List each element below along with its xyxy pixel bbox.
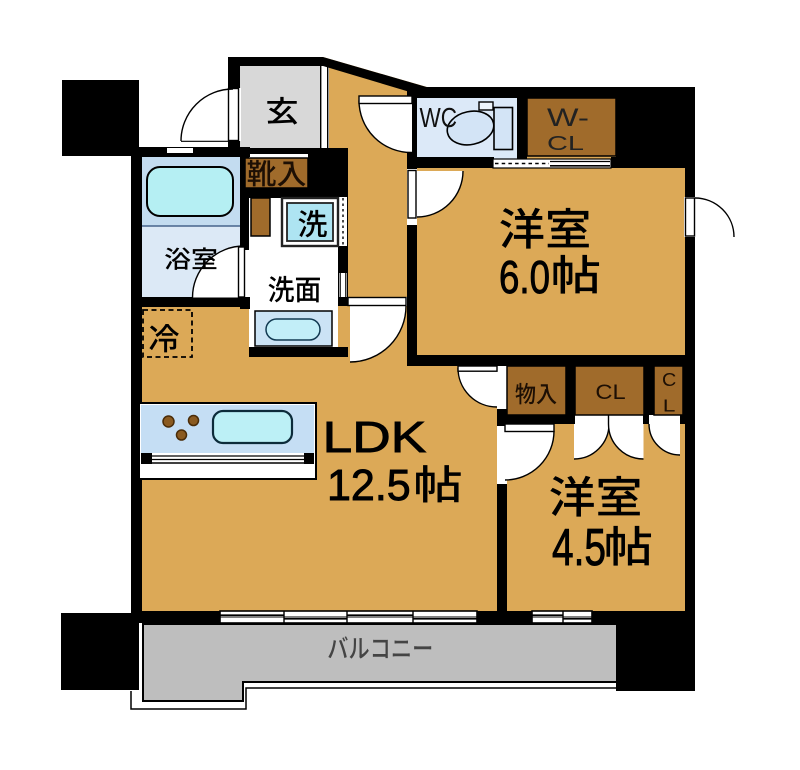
- svg-text:WC: WC: [420, 102, 458, 133]
- svg-text:CL: CL: [595, 381, 625, 404]
- svg-text:12.5: 12.5: [327, 461, 411, 510]
- svg-text:C: C: [662, 369, 676, 390]
- svg-text:LDK: LDK: [323, 413, 427, 462]
- svg-text:W-: W-: [547, 105, 589, 132]
- svg-text:4.5: 4.5: [552, 519, 606, 577]
- svg-text:CL: CL: [547, 132, 584, 155]
- svg-text:L: L: [663, 395, 676, 415]
- svg-text:6.0: 6.0: [499, 251, 550, 303]
